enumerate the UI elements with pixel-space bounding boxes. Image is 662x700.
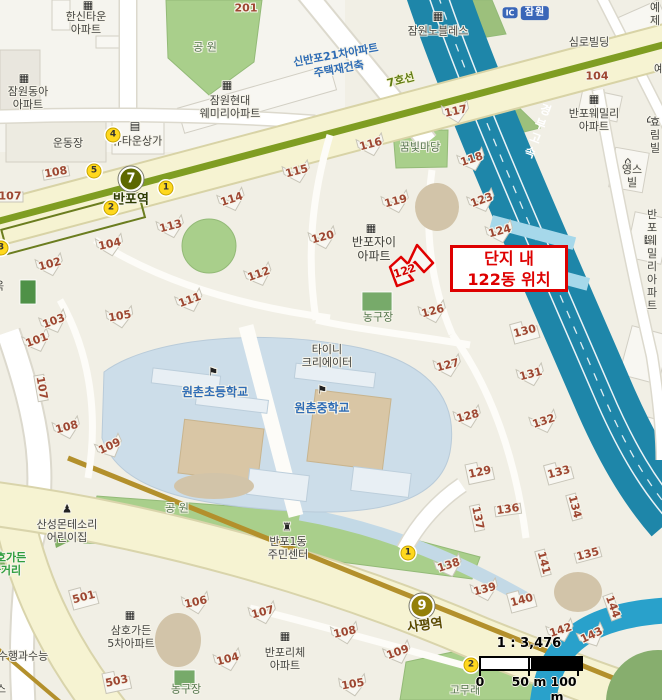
- num-108-s: 108: [332, 624, 357, 641]
- apartment-icon: ▦: [589, 94, 599, 107]
- label-sanseong-montessori-daycare: 산성몬테소리 어린이집: [37, 519, 98, 545]
- num-503: 503: [104, 673, 129, 690]
- label-samho-garden-5-apt: 삼호가든 5차아파트: [107, 625, 154, 651]
- line9-station-badge: 9: [410, 594, 435, 619]
- apartment-icon: ▦: [280, 631, 290, 644]
- num-123: 123: [469, 191, 495, 211]
- num-132: 132: [531, 412, 557, 431]
- label-park-top: 공 원: [193, 42, 217, 55]
- num-105: 105: [108, 309, 133, 326]
- label-woncheon-middle-school: 원촌중학교: [294, 401, 349, 415]
- num-108-mid: 108: [54, 419, 80, 437]
- label-dream-light-yard: 꿈빛마당: [400, 142, 440, 155]
- scale-label-0: 0: [476, 674, 485, 689]
- num-124: 124: [487, 223, 513, 241]
- num-201: 201: [235, 3, 258, 16]
- gov-building-icon: ♜: [282, 522, 292, 535]
- num-136: 136: [496, 502, 521, 518]
- num-131: 131: [518, 366, 544, 384]
- num-108: 108: [44, 165, 69, 182]
- line7-station-badge: 7: [119, 167, 144, 192]
- num-120: 120: [310, 229, 336, 247]
- num-501: 501: [71, 589, 97, 607]
- apartment-icon: ▦: [433, 11, 443, 24]
- label-jamwon-hyundai-apt: 잠원현대 웨미리아파트: [200, 95, 261, 121]
- scale-bar: 1 : 3,476 0 50 m 100 m: [450, 636, 615, 694]
- exit-badge: 5: [87, 164, 102, 179]
- scale-label-100: 100 m: [551, 674, 594, 700]
- label-hyorim-villa: 효림빌: [650, 117, 660, 156]
- label-sapyeong-station: 사평역: [406, 616, 444, 636]
- num-107-s: 107: [250, 604, 276, 622]
- ic-jamwon-name: 잠원: [521, 6, 549, 20]
- label-layer: ▦한신타운 아파트공 원201▦잠원동아 아파트운동장▤뉴타운상가▦잠원현대 웨…: [0, 0, 662, 700]
- home-icon: ⌂: [625, 156, 632, 169]
- num-109-s: 109: [385, 643, 411, 663]
- num-127: 127: [435, 357, 461, 375]
- num-144: 144: [602, 594, 622, 620]
- exit-badge: 1: [401, 546, 416, 561]
- num-107: 107: [0, 191, 21, 204]
- num-126: 126: [420, 303, 446, 321]
- apartment-icon: ▦: [222, 80, 232, 93]
- school-flag-icon: ⚑: [208, 367, 218, 380]
- label-tiny-creator: 타이니 크리에이터: [302, 344, 353, 370]
- label-suhaeng-academy: 수행과수능: [0, 651, 48, 664]
- num-114: 114: [219, 190, 245, 209]
- label-partial-uk: 욱: [0, 281, 4, 294]
- scale-tick: [528, 656, 530, 676]
- num-113: 113: [158, 218, 184, 236]
- scale-ratio: 1 : 3,476: [497, 636, 561, 651]
- num-104-s: 104: [215, 651, 241, 669]
- num-117: 117: [443, 103, 468, 120]
- num-139: 139: [472, 581, 498, 599]
- apartment-icon: ▦: [644, 234, 654, 247]
- label-ye-partial: 예: [654, 64, 662, 77]
- label-basketball-court-1: 농구장: [363, 312, 393, 325]
- home-icon: ⌂: [647, 114, 654, 127]
- label-park-bottom: 공 원: [165, 503, 189, 516]
- num-115: 115: [284, 163, 310, 181]
- annotation-line1: 단지 내: [484, 248, 534, 269]
- num-135: 135: [575, 546, 601, 564]
- num-102: 102: [37, 256, 63, 274]
- num-122: 122: [392, 262, 418, 281]
- num-104-top: 104: [586, 71, 609, 84]
- exit-badge: 3: [0, 241, 9, 256]
- label-banpo1dong-community-center: 반포1동 주민센터: [268, 536, 308, 562]
- num-138: 138: [436, 556, 462, 575]
- num-109-mid: 109: [97, 436, 123, 457]
- num-106-s: 106: [183, 594, 208, 611]
- num-107-mid: 107: [33, 376, 50, 401]
- label-banpo-riche-apt: 반포리체 아파트: [265, 647, 305, 673]
- annotation-box: 단지 내 122동 위치: [450, 245, 568, 292]
- num-141: 141: [534, 550, 552, 576]
- num-105-s: 105: [341, 677, 366, 694]
- scale-track: [479, 656, 583, 671]
- map-canvas[interactable]: ▦한신타운 아파트공 원201▦잠원동아 아파트운동장▤뉴타운상가▦잠원현대 웨…: [0, 0, 662, 700]
- label-newtown-mall: 뉴타운상가: [112, 136, 163, 149]
- label-partial-seu: 스: [0, 684, 6, 697]
- label-banpo-xi-apt: 반포자이 아파트: [352, 235, 396, 263]
- label-hanshin-town-apt: 한신타운 아파트: [66, 11, 106, 37]
- annotation-line2: 122동 위치: [467, 269, 550, 290]
- scale-label-50: 50 m: [512, 674, 547, 689]
- label-banpo-station: 반포역: [113, 192, 149, 207]
- label-shinbanpo-redevelopment-1: 신반포21차아파트: [292, 42, 379, 70]
- label-yeje-partial: 예제: [650, 2, 660, 28]
- apartment-icon: ▦: [366, 223, 376, 236]
- num-129: 129: [467, 464, 492, 481]
- num-103: 103: [41, 312, 67, 332]
- num-111: 111: [177, 291, 203, 311]
- label-sports-field: 운동장: [53, 138, 83, 151]
- apartment-icon: ▦: [19, 73, 29, 86]
- num-118: 118: [459, 150, 485, 169]
- scale-tick: [577, 656, 579, 676]
- school-flag-icon: ⚑: [317, 385, 327, 398]
- label-basketball-court-2: 농구장: [171, 684, 201, 697]
- label-samho-garden-junction: 삼호가든 사거리: [0, 552, 26, 578]
- apartment-icon: ▦: [83, 0, 93, 12]
- ic-badge: IC: [503, 7, 518, 18]
- shopping-icon: ▤: [130, 121, 140, 134]
- num-130: 130: [512, 323, 538, 341]
- label-shinbanpo-redevelopment-2: 주택재건축: [313, 59, 365, 81]
- label-youngs-villa: 영스빌: [617, 164, 647, 190]
- num-101: 101: [24, 331, 50, 351]
- num-128: 128: [455, 408, 481, 426]
- num-134: 134: [565, 494, 583, 520]
- person-icon: ♟: [62, 504, 72, 517]
- label-jamwon-nobless: 잠원노블레스: [408, 26, 469, 39]
- exit-badge: 2: [104, 201, 119, 216]
- apartment-icon: ▦: [125, 610, 135, 623]
- exit-badge: 1: [159, 181, 174, 196]
- num-133: 133: [546, 464, 572, 482]
- label-line7-road: 7호선: [386, 71, 416, 91]
- num-104: 104: [97, 236, 122, 253]
- num-140: 140: [509, 592, 535, 610]
- label-jamwon-donga-apt: 잠원동아 아파트: [8, 86, 48, 112]
- label-banpo-family-apt-1: 반포웨밀리 아파트: [569, 108, 620, 134]
- num-119: 119: [383, 193, 409, 211]
- num-112: 112: [246, 265, 272, 285]
- exit-badge: 4: [106, 128, 121, 143]
- num-116: 116: [358, 136, 384, 154]
- num-137: 137: [468, 505, 485, 530]
- label-banpo-family-apt-2: 반포웨밀리 아파트: [647, 209, 657, 313]
- scale-tick: [479, 656, 481, 676]
- label-gyeongbu-expressway: 경부고속: [520, 101, 554, 162]
- label-woncheon-elementary-school: 원촌초등학교: [182, 385, 248, 399]
- label-simro-building: 심로빌딩: [569, 37, 609, 50]
